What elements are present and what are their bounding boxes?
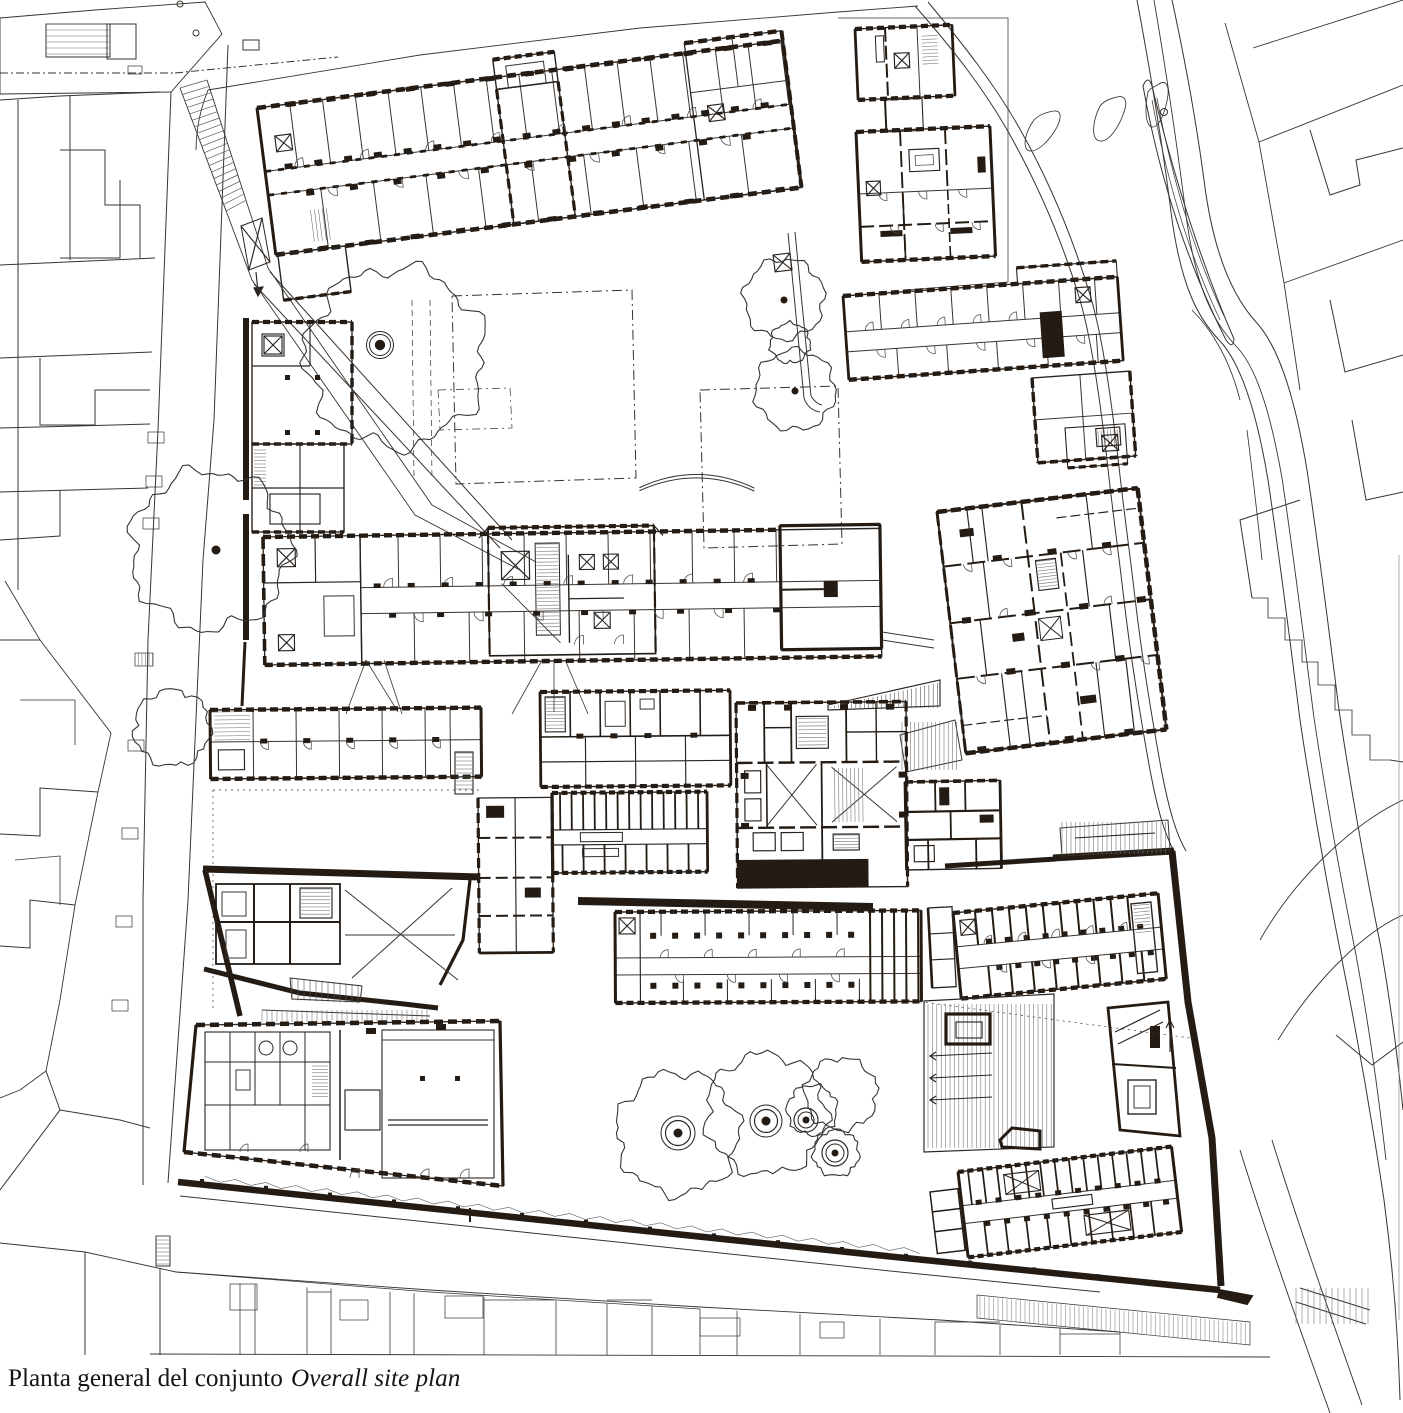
svg-text:Planta general del conjunto: Planta general del conjunto [8, 1365, 283, 1392]
svg-text:Overall site plan: Overall site plan [291, 1365, 460, 1392]
